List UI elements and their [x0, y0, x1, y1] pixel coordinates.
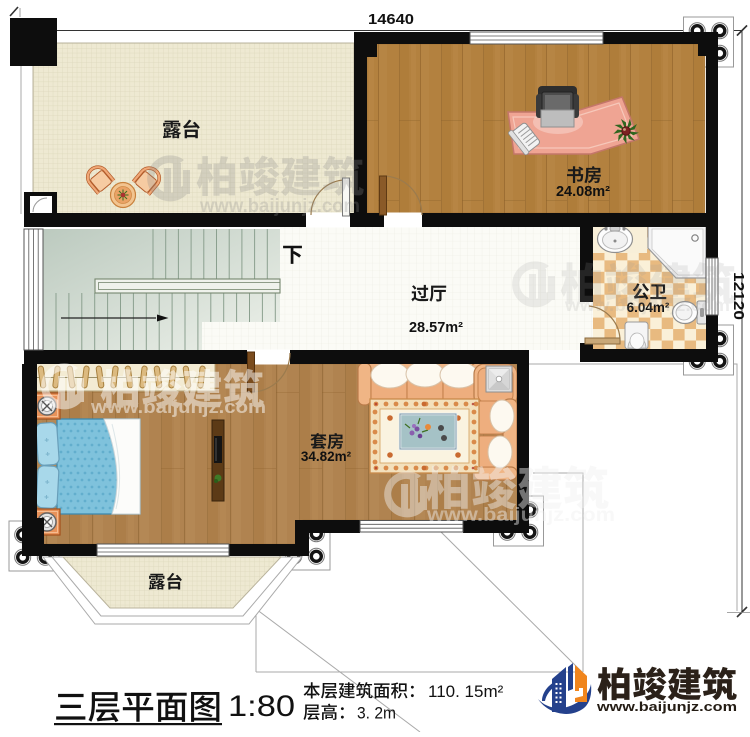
svg-text:www.baijunjz.com: www.baijunjz.com — [199, 196, 360, 217]
svg-text:110. 15m²: 110. 15m² — [428, 682, 504, 701]
svg-text:www.baijunjz.com: www.baijunjz.com — [596, 700, 737, 714]
svg-text:24.08m²: 24.08m² — [556, 184, 610, 200]
svg-text:1:80: 1:80 — [228, 690, 295, 723]
svg-text:www.baijunjz.com: www.baijunjz.com — [90, 396, 266, 417]
svg-text:28.57m²: 28.57m² — [409, 320, 463, 336]
svg-text:www.baijunjz.com: www.baijunjz.com — [564, 295, 730, 315]
svg-text:3. 2m: 3. 2m — [357, 704, 396, 723]
svg-text:www.baijunjz.com: www.baijunjz.com — [426, 504, 615, 526]
svg-text:14640: 14640 — [368, 11, 414, 28]
svg-text:34.82m²: 34.82m² — [301, 449, 352, 464]
